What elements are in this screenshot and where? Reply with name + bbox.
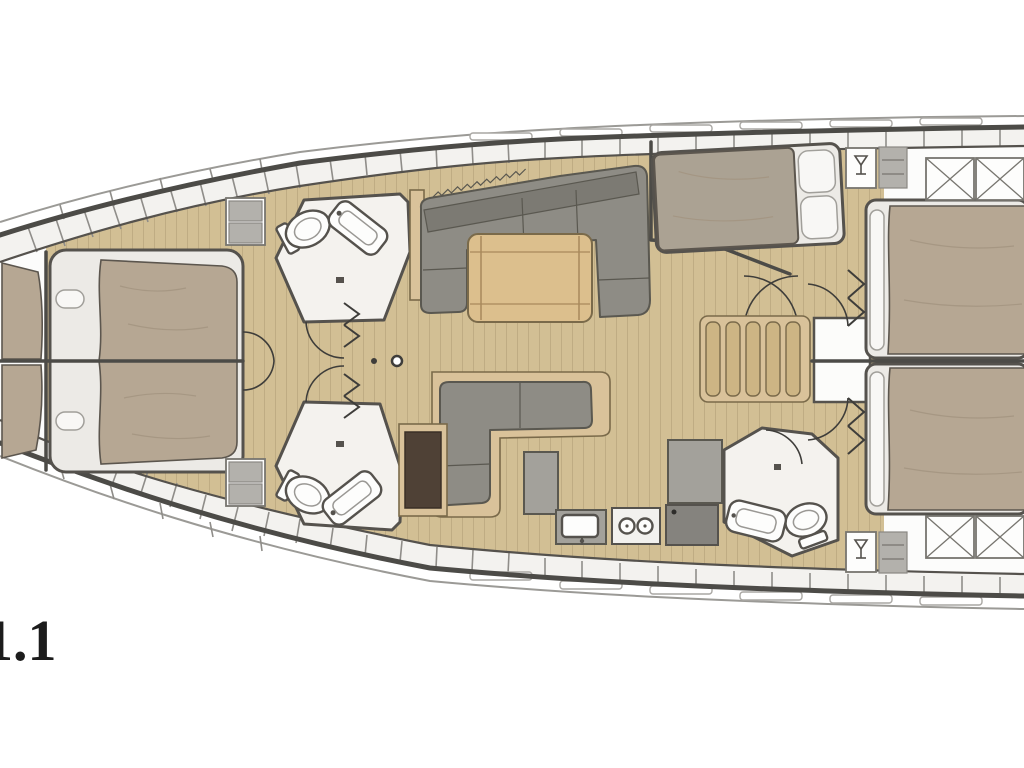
companionway	[700, 316, 870, 402]
galley-counter-inboard	[524, 452, 558, 514]
saloon-cabinet	[399, 424, 447, 516]
bow-locker-port	[2, 263, 42, 359]
galley-sink-unit	[556, 510, 606, 545]
shower-drain-forward-starboard	[336, 441, 344, 447]
wet-locker-port	[846, 148, 876, 188]
vent-locker-port	[879, 147, 907, 188]
wet-locker-starboard	[846, 532, 876, 572]
shower-drain-aft	[774, 464, 781, 470]
mast-step	[392, 356, 402, 366]
companionway-steps	[706, 322, 800, 396]
shower-drain-forward-port	[336, 277, 344, 283]
mid-cabin-bed	[652, 143, 845, 253]
aft-cabin-port-bed	[866, 200, 1024, 358]
forward-bed-pillow-starboard	[56, 412, 84, 430]
plan-label: 1.1	[0, 608, 57, 673]
forward-bed-pillow-port	[56, 290, 84, 308]
galley-fridge	[666, 505, 718, 545]
forward-wardrobe-starboard	[226, 459, 265, 506]
vent-locker-starboard	[879, 532, 907, 573]
yacht-floor-plan-page: 1.1	[0, 0, 1024, 768]
galley-stove	[612, 508, 660, 544]
deck-fitting-dot	[371, 358, 377, 364]
yacht-floor-plan: 1.1	[0, 0, 1024, 768]
aft-cabin-starboard-bed	[866, 364, 1024, 514]
forward-wardrobe-port	[226, 198, 265, 245]
galley-tall-locker	[668, 440, 722, 503]
saloon-table	[468, 234, 592, 322]
bow-locker-starboard	[2, 365, 42, 458]
